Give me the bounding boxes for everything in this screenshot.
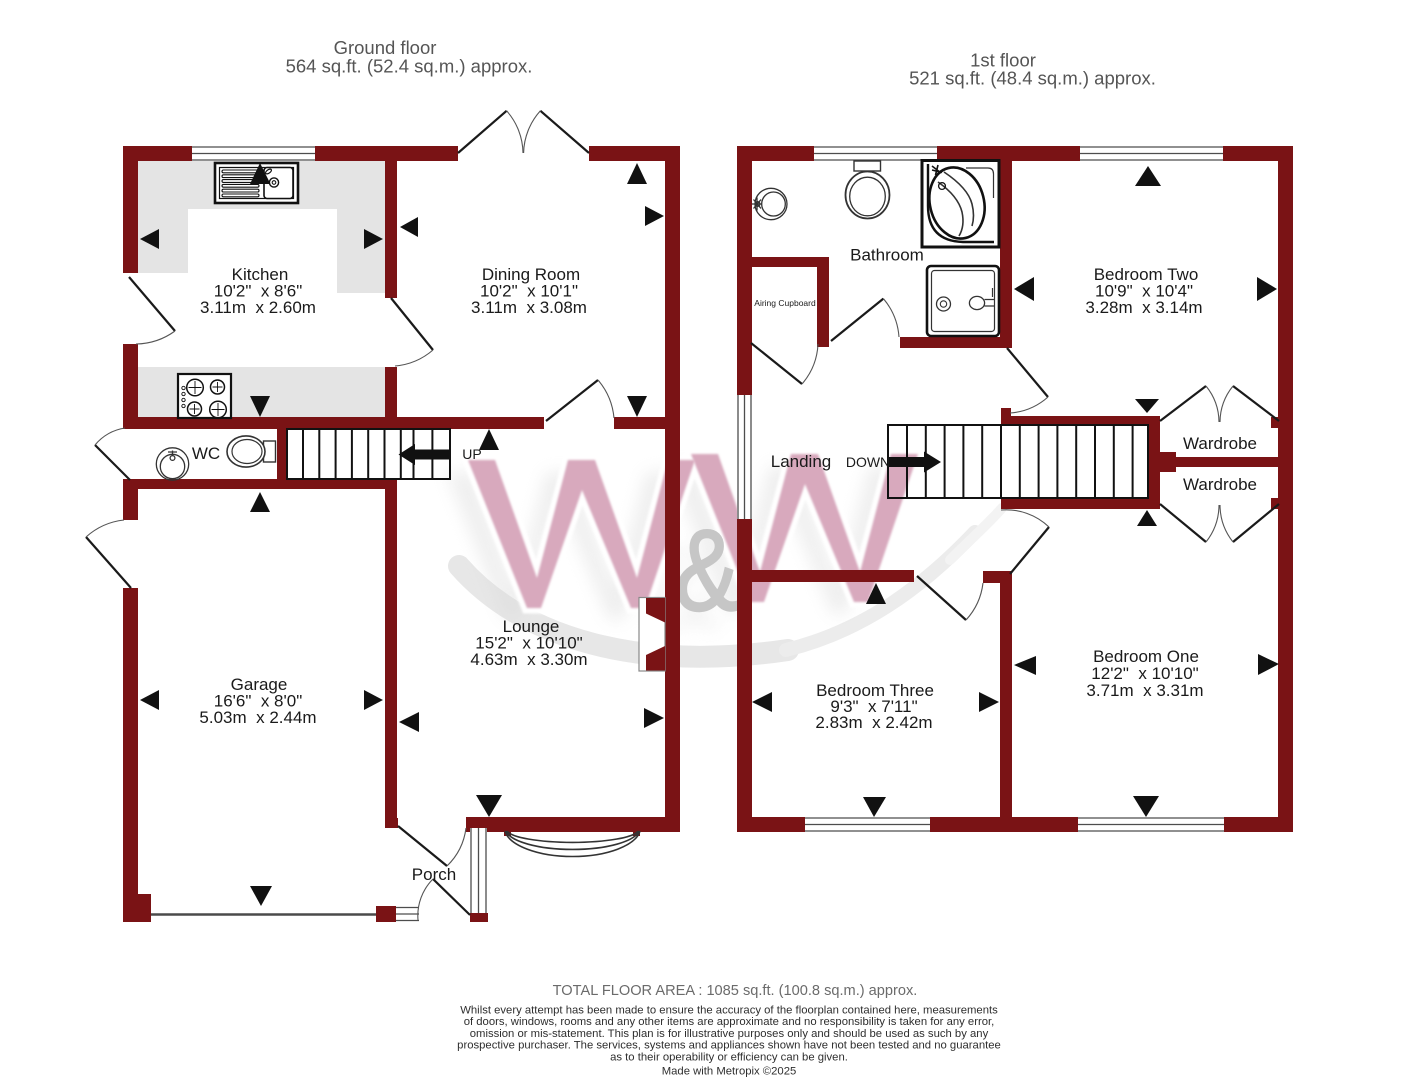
svg-text:Bathroom: Bathroom [850,246,924,265]
svg-text:Whilst every attempt has been: Whilst every attempt has been made to en… [460,1005,998,1017]
svg-text:4.63m x 3.30m: 4.63m x 3.30m [470,650,587,669]
svg-text:5.03m x 2.44m: 5.03m x 2.44m [199,708,316,727]
svg-text:Landing: Landing [771,452,832,471]
svg-text:564 sq.ft. (52.4 sq.m.) approx: 564 sq.ft. (52.4 sq.m.) approx. [286,56,533,77]
svg-text:UP: UP [462,446,481,462]
svg-text:omission or mis-statement. Thi: omission or mis-statement. This plan is … [470,1028,989,1040]
svg-text:Porch: Porch [412,865,456,884]
svg-text:3.11m x 3.08m: 3.11m x 3.08m [471,298,587,317]
svg-text:Wardrobe: Wardrobe [1183,475,1257,494]
svg-text:&: & [675,506,739,635]
svg-text:Made with Metropix ©2025: Made with Metropix ©2025 [662,1066,797,1078]
svg-text:521 sq.ft. (48.4 sq.m.) approx: 521 sq.ft. (48.4 sq.m.) approx. [909,68,1156,89]
svg-text:WC: WC [192,444,220,463]
svg-text:3.28m x 3.14m: 3.28m x 3.14m [1085,298,1202,317]
svg-text:2.83m x 2.42m: 2.83m x 2.42m [815,713,932,732]
svg-text:TOTAL FLOOR AREA : 1085 sq.ft.: TOTAL FLOOR AREA : 1085 sq.ft. (100.8 sq… [553,983,918,999]
svg-text:3.11m x 2.60m: 3.11m x 2.60m [200,298,316,317]
svg-text:DOWN: DOWN [846,454,890,470]
svg-text:as to their operability or eff: as to their operability or efficiency ca… [610,1051,848,1063]
svg-text:prospective purchaser. The ser: prospective purchaser. The services, sys… [457,1040,1001,1052]
svg-text:of doors, windows, rooms and a: of doors, windows, rooms and any other i… [464,1016,995,1028]
svg-text:Wardrobe: Wardrobe [1183,434,1257,453]
svg-text:3.71m x 3.31m: 3.71m x 3.31m [1086,681,1203,700]
svg-text:Airing Cupboard: Airing Cupboard [754,298,816,308]
